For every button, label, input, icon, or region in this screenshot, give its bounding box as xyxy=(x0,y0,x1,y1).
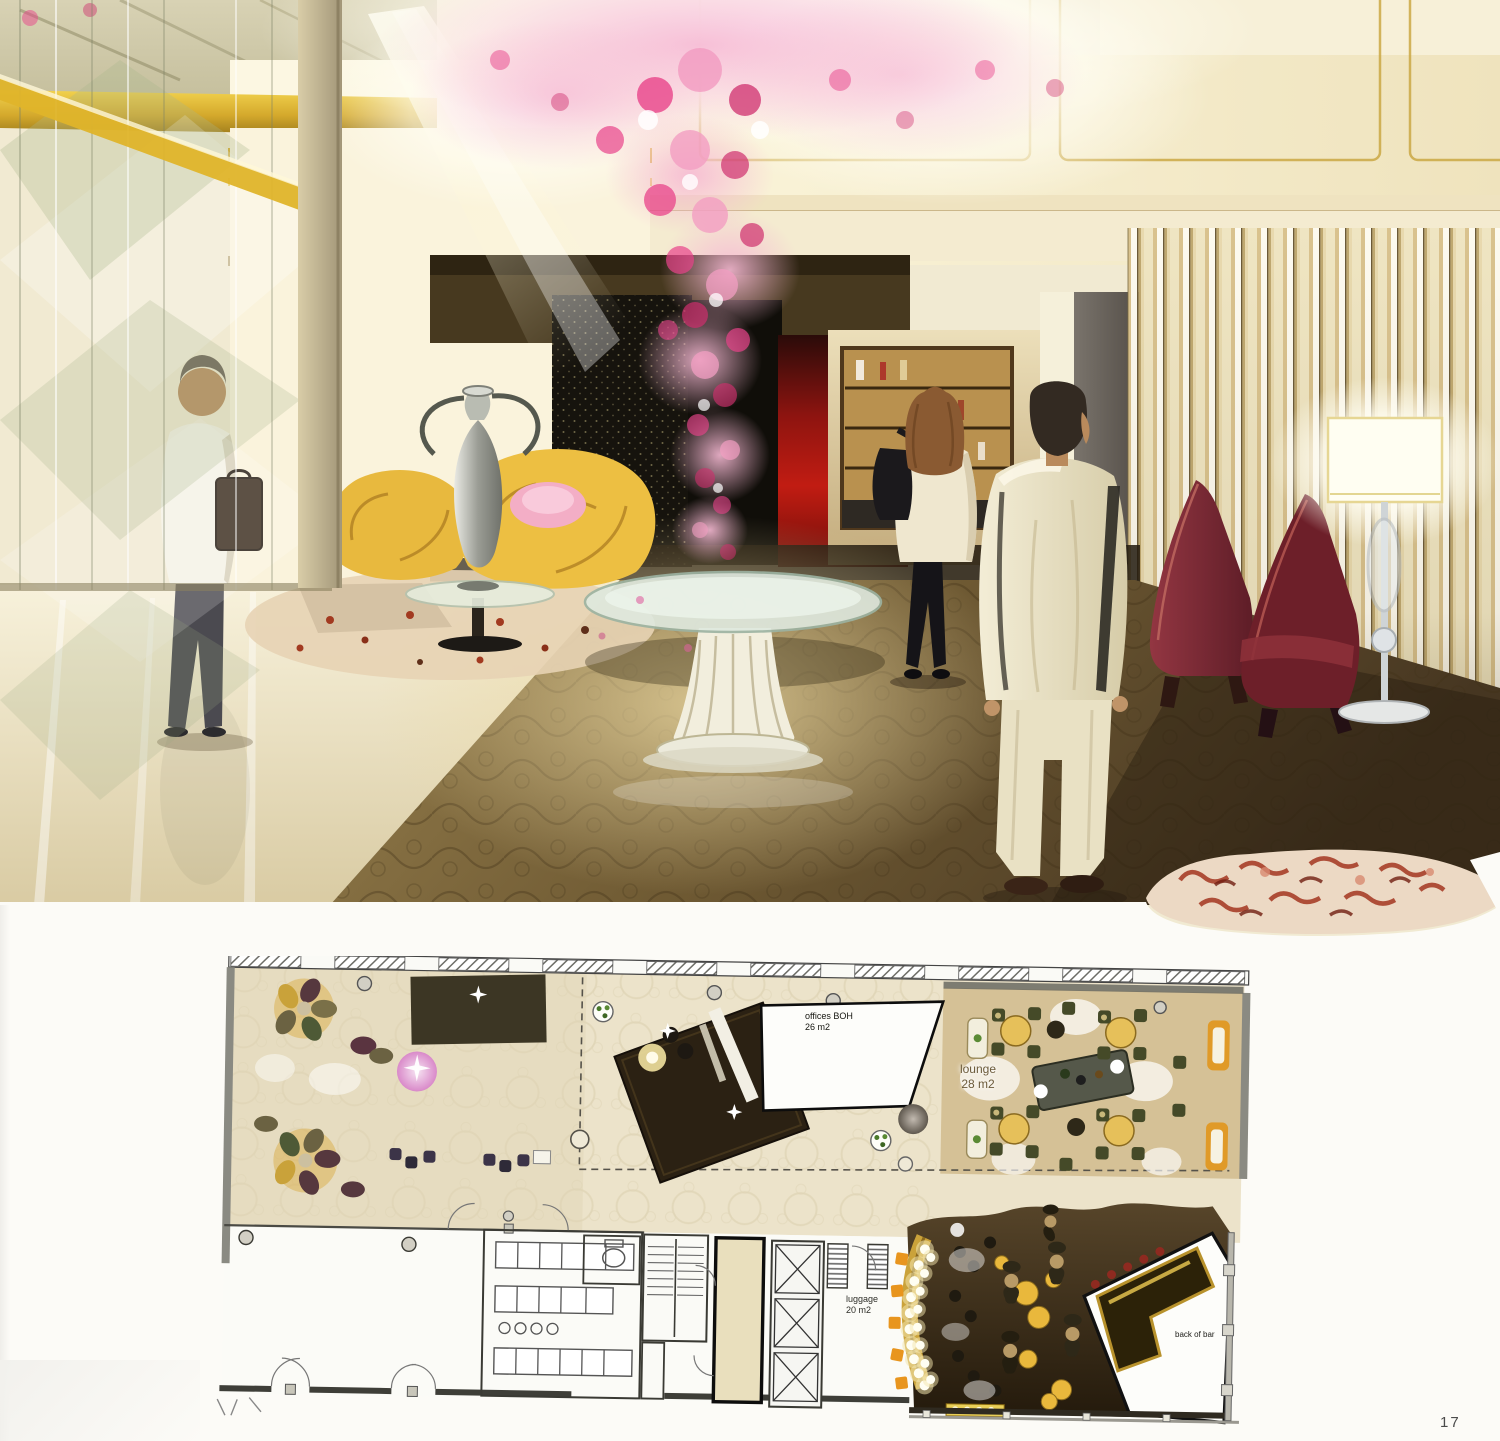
bar-area xyxy=(887,1199,1243,1424)
elevators xyxy=(769,1241,824,1408)
floor-plan-drawing xyxy=(213,956,1257,1440)
lobby-rendering xyxy=(0,0,1500,940)
scan-corner-shading xyxy=(0,1360,200,1441)
book-page: offices BOH26 m2 lounge28 m2 luggage20 m… xyxy=(0,0,1500,1441)
floor-plan xyxy=(213,956,1257,1440)
plan-content xyxy=(217,956,1251,1433)
pink-rug xyxy=(1146,850,1496,934)
corridor xyxy=(713,1238,764,1403)
lamp-shade xyxy=(1328,418,1442,502)
lobby-rendering-artwork xyxy=(0,0,1500,940)
page-number: 17 xyxy=(1440,1414,1461,1431)
